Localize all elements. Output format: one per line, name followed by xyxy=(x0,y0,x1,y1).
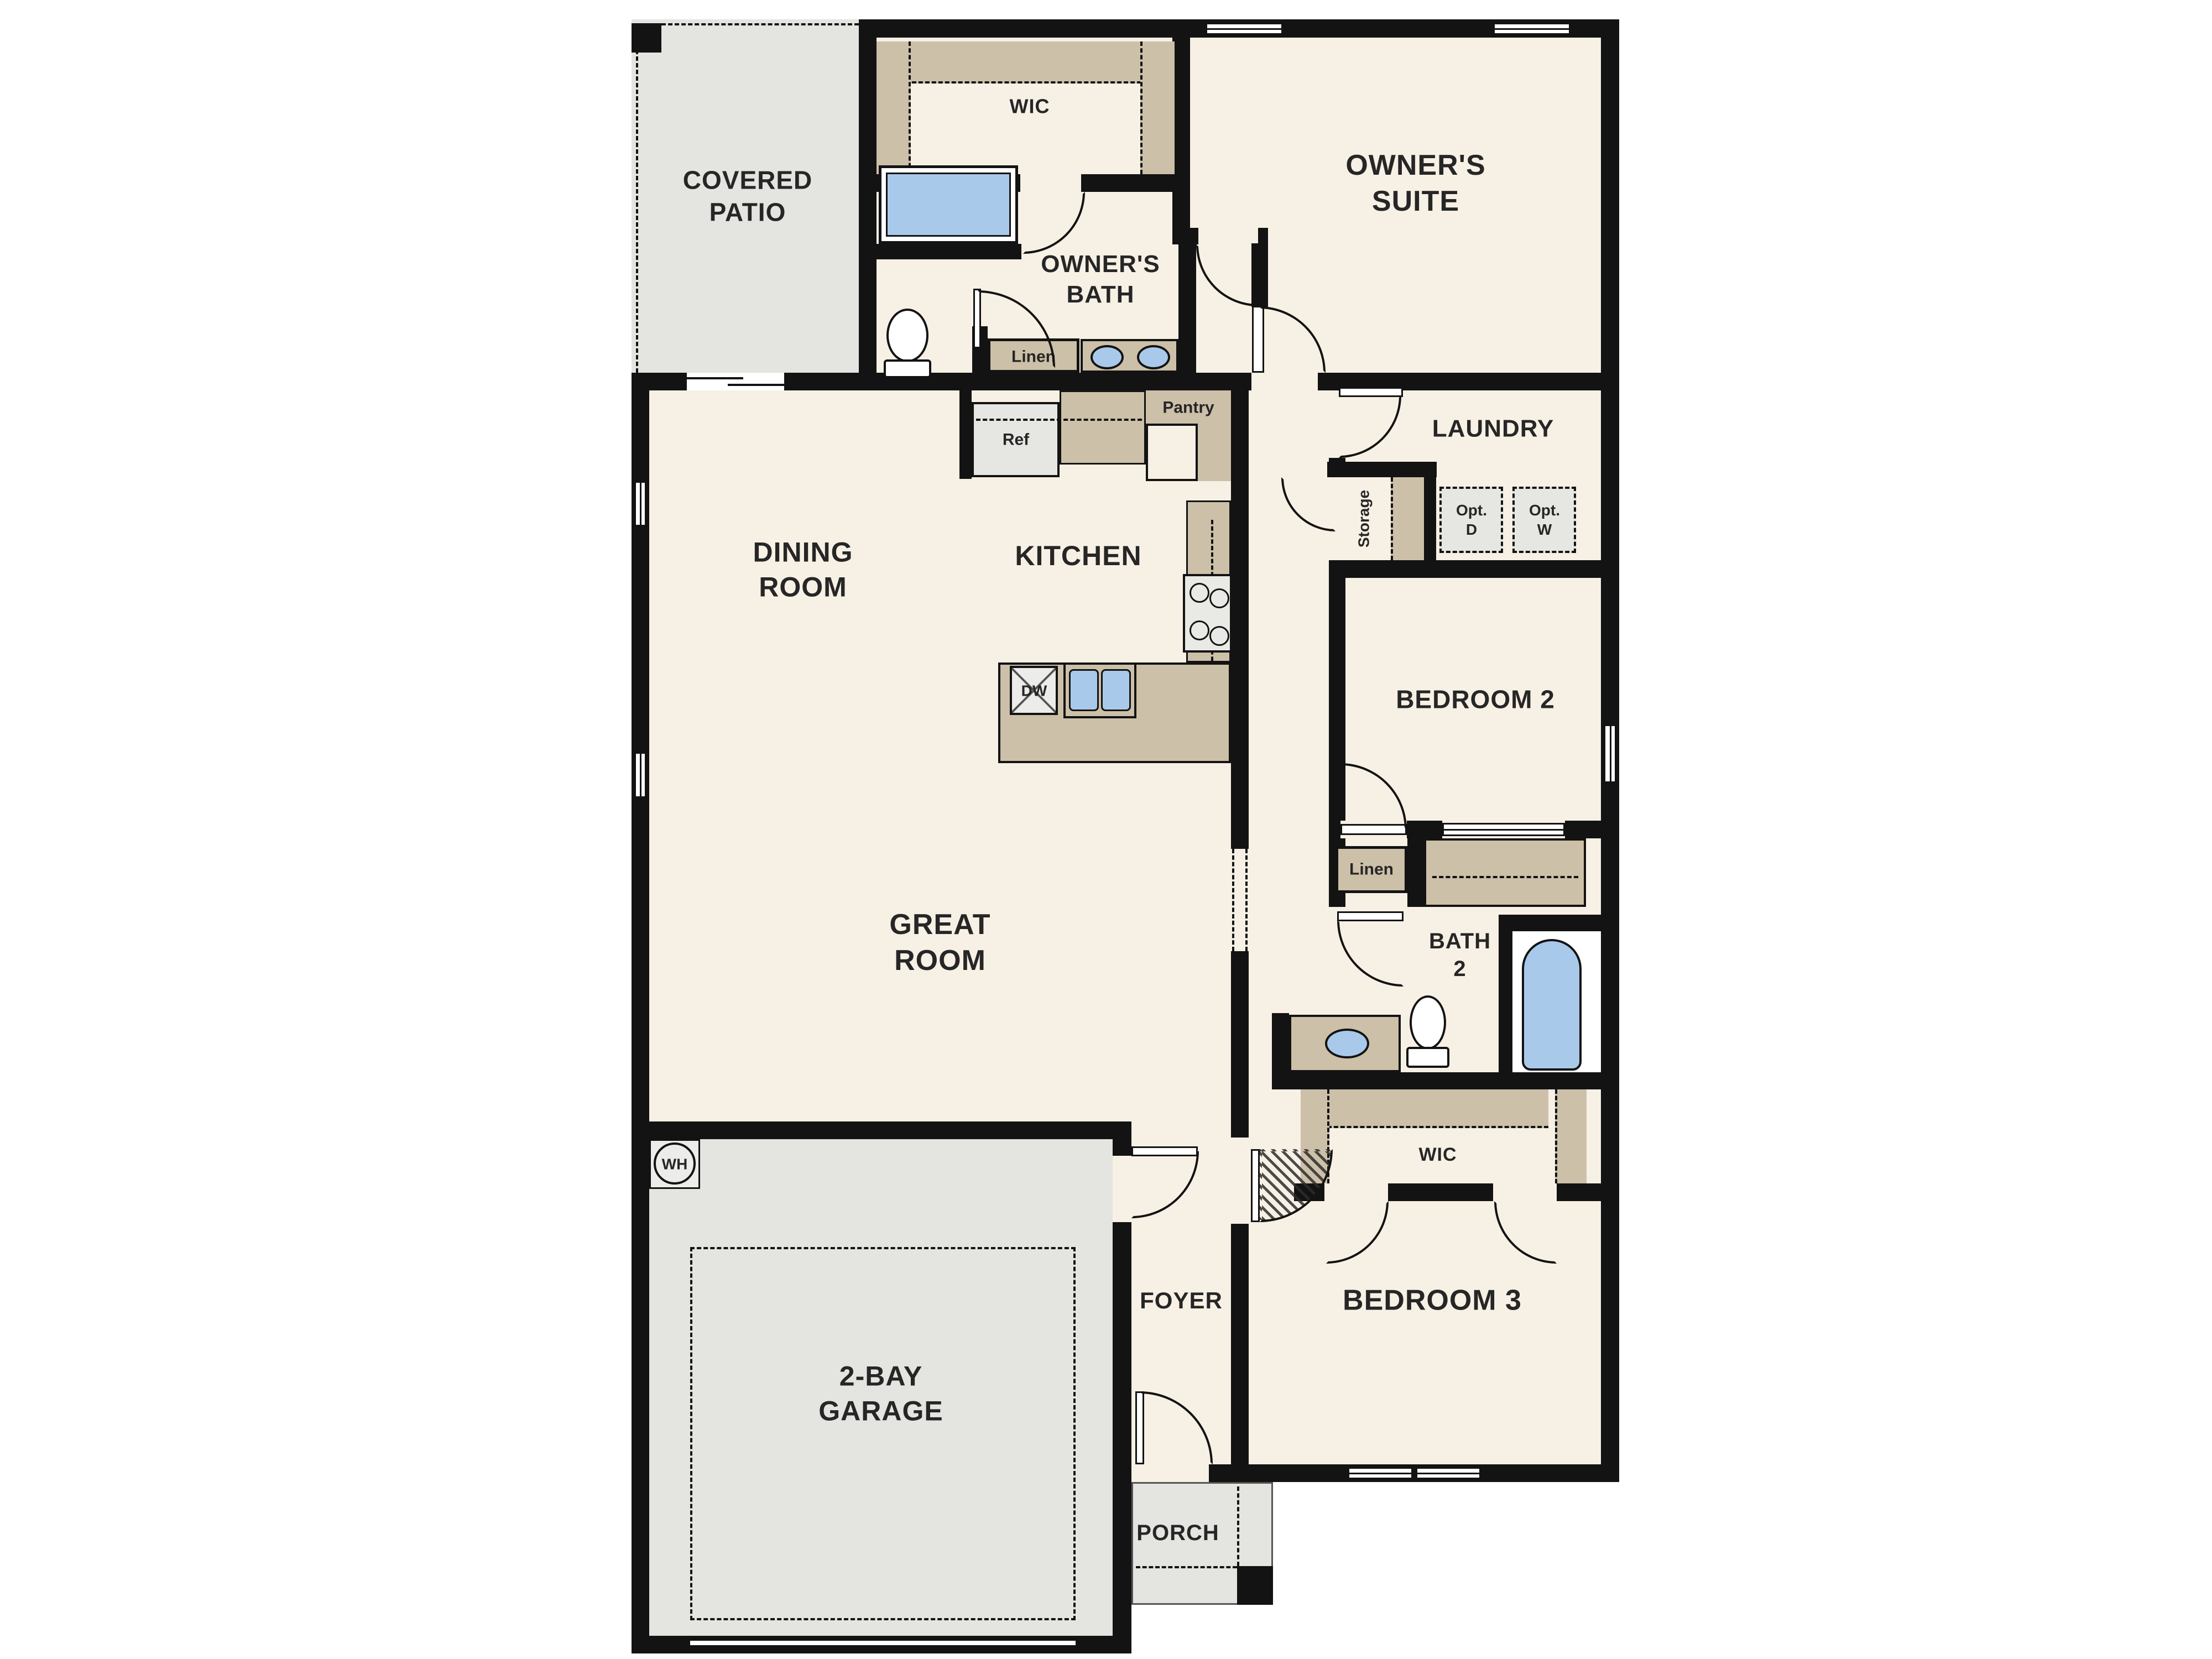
bedroom2-label: BEDROOM 2 xyxy=(1396,684,1555,716)
bath2-tub xyxy=(1522,939,1582,1071)
central-opening-dash-right xyxy=(1245,849,1248,951)
pantry-label: Pantry xyxy=(1162,397,1214,418)
wall-garage-right-b xyxy=(1113,1222,1131,1653)
owner-sink-2 xyxy=(1137,345,1170,369)
stove-burner-1 xyxy=(1190,583,1209,603)
owners-suite-label: OWNER'SSUITE xyxy=(1345,148,1485,220)
porch-corner-post xyxy=(1237,1566,1273,1605)
wall-central-c xyxy=(1231,1224,1249,1482)
dining-window-1 xyxy=(634,481,646,526)
wall-central-b xyxy=(1231,951,1249,1138)
wall-central-a xyxy=(1231,373,1249,849)
wall-tub-top xyxy=(1499,915,1601,931)
bed2-closet-shelf-dash xyxy=(1432,876,1578,878)
bed3-window-1 xyxy=(1348,1467,1413,1479)
wall-laundry-bottom xyxy=(1329,560,1619,578)
porch-dashed-h xyxy=(1136,1566,1237,1568)
patio-dashed-top-edge xyxy=(661,23,859,25)
patio-dashed-left-edge xyxy=(636,23,638,373)
water-heater-label: WH xyxy=(662,1155,688,1174)
optional-washer-label: Opt.W xyxy=(1529,500,1560,539)
kitchen-sink xyxy=(1063,662,1136,718)
wall-wic-south-b xyxy=(1081,174,1172,192)
wall-bath2-west xyxy=(1272,1013,1289,1076)
wall-cross-a xyxy=(1172,228,1198,244)
kitchen-counter-top xyxy=(1060,390,1146,465)
garage-door-opening xyxy=(690,1639,1076,1647)
wall-bed3-top-c xyxy=(1557,1183,1601,1201)
wall-left xyxy=(632,373,649,1653)
wic3-shelf-right xyxy=(1555,1089,1587,1183)
pantry-niche xyxy=(1146,424,1198,481)
bed3-door-leaf xyxy=(1251,1149,1260,1222)
owner-shower-pan xyxy=(886,173,1011,237)
stove-burner-3 xyxy=(1190,620,1209,640)
foyer-label: FOYER xyxy=(1140,1286,1223,1316)
wic3-shelf-top xyxy=(1327,1089,1548,1128)
wall-cross-b xyxy=(1258,228,1268,244)
wall-bed2-bottom-c xyxy=(1565,821,1601,838)
wall-garage-top xyxy=(632,1121,1131,1139)
bed3-window-2 xyxy=(1416,1467,1481,1479)
owner-wic-label: WIC xyxy=(1010,94,1050,119)
kitchen-sink-basin-left xyxy=(1069,669,1099,711)
wall-bed2-bottom-a xyxy=(1329,821,1340,838)
laundry-label: LAUNDRY xyxy=(1432,414,1554,444)
kitchen-counter-dashed-line xyxy=(976,419,1142,421)
garage-label: 2-BAYGARAGE xyxy=(818,1359,943,1428)
porch-dashed-v xyxy=(1237,1486,1239,1566)
owner-wic-shelf-left xyxy=(877,41,911,174)
wall-foyer-bottom-stub xyxy=(1209,1464,1249,1482)
bath2-label: BATH2 xyxy=(1429,927,1491,983)
suite-window-top-1 xyxy=(1206,23,1283,35)
dining-room-label: DININGROOM xyxy=(753,535,853,604)
patio-corner-post xyxy=(632,23,661,53)
central-opening-dash-left xyxy=(1232,849,1234,951)
kitchen-sink-basin-right xyxy=(1101,669,1131,711)
stove-burner-2 xyxy=(1209,588,1229,608)
wall-wic-right xyxy=(1172,19,1190,244)
fridge-label: Ref xyxy=(1003,429,1029,450)
porch-label: PORCH xyxy=(1136,1519,1219,1547)
wic3-label: WIC xyxy=(1418,1143,1457,1167)
covered-patio-label: COVEREDPATIO xyxy=(683,165,812,228)
wall-tub-left xyxy=(1499,915,1512,1078)
bath2-toilet-tank xyxy=(1406,1047,1449,1068)
wall-garage-right-a xyxy=(1113,1121,1131,1156)
patio-sliding-door xyxy=(687,373,784,390)
suite-window-top-2 xyxy=(1493,23,1571,35)
owner-toilet-bowl xyxy=(886,309,928,362)
garage-parking-dashed-area xyxy=(690,1247,1076,1620)
wall-patio-bottom-right xyxy=(784,373,877,390)
stove xyxy=(1183,574,1232,653)
dining-window-2 xyxy=(634,752,646,798)
optional-dryer-label: Opt.D xyxy=(1456,500,1487,539)
storage-shelf xyxy=(1391,477,1426,560)
hall-linen-label: Linen xyxy=(1349,859,1394,880)
floor-plan: Linen Ref Pantry DW xyxy=(0,0,2212,1659)
owners-bath-label: OWNER'SBATH xyxy=(1041,249,1160,310)
wall-storage-top xyxy=(1327,462,1437,477)
bed2-closet-bypass-doors xyxy=(1442,823,1565,836)
kitchen-label: KITCHEN xyxy=(1015,539,1141,573)
wall-vanity-right xyxy=(1178,243,1196,390)
owner-shower xyxy=(879,165,1018,244)
wall-bed3-top-b xyxy=(1388,1183,1493,1201)
wall-patio-right xyxy=(859,19,877,390)
great-room-label: GREATROOM xyxy=(889,907,990,979)
dishwasher-label: DW xyxy=(1021,681,1047,701)
stove-burner-4 xyxy=(1209,626,1229,646)
wall-linen-right-stub xyxy=(1407,830,1424,907)
owner-sink-1 xyxy=(1091,345,1124,369)
owner-toilet-tank xyxy=(884,359,931,378)
wall-storage-right xyxy=(1424,477,1436,560)
bath2-sink xyxy=(1325,1029,1369,1058)
bedroom3-label: BEDROOM 3 xyxy=(1343,1283,1522,1319)
wall-under-shower xyxy=(877,244,1021,259)
bath2-toilet-bowl xyxy=(1410,995,1446,1050)
owner-wic-shelf-top xyxy=(885,41,1155,84)
storage-label: Storage xyxy=(1354,490,1374,547)
bed2-closet-shelf xyxy=(1424,838,1586,907)
bed2-window xyxy=(1604,724,1616,783)
wall-wic3-top xyxy=(1272,1072,1601,1089)
wall-ref-stub xyxy=(959,390,972,479)
owner-wic-shelf-right xyxy=(1140,41,1175,174)
wall-patio-bottom-left xyxy=(632,373,687,390)
